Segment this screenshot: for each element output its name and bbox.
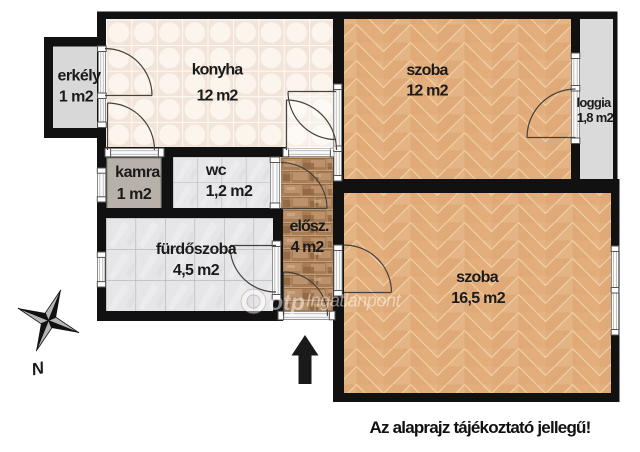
svg-text:4 m2: 4 m2 bbox=[291, 239, 325, 256]
svg-text:szoba: szoba bbox=[456, 269, 499, 286]
svg-text:elősz.: elősz. bbox=[289, 218, 329, 235]
svg-text:fürdőszoba: fürdőszoba bbox=[156, 241, 237, 258]
svg-text:kamra: kamra bbox=[115, 164, 160, 181]
svg-text:16,5 m2: 16,5 m2 bbox=[451, 290, 506, 307]
svg-text:1 m2: 1 m2 bbox=[117, 186, 152, 203]
svg-text:1 m2: 1 m2 bbox=[59, 89, 94, 106]
svg-text:wc: wc bbox=[205, 162, 227, 179]
svg-text:12 m2: 12 m2 bbox=[406, 83, 448, 100]
svg-text:12 m2: 12 m2 bbox=[197, 88, 239, 105]
svg-text:Az alaprajz tájékoztató jelleg: Az alaprajz tájékoztató jellegű! bbox=[370, 418, 591, 437]
svg-text:szoba: szoba bbox=[406, 62, 448, 79]
svg-text:1,8 m2: 1,8 m2 bbox=[577, 110, 614, 125]
svg-text:konyha: konyha bbox=[192, 62, 244, 79]
svg-text:Ingatlanpont: Ingatlanpont bbox=[306, 291, 402, 311]
svg-text:erkély: erkély bbox=[58, 68, 102, 85]
svg-text:otp: otp bbox=[269, 289, 305, 315]
svg-text:1,2 m2: 1,2 m2 bbox=[206, 183, 253, 200]
svg-text:loggia: loggia bbox=[576, 95, 612, 110]
svg-text:4,5 m2: 4,5 m2 bbox=[173, 262, 220, 279]
